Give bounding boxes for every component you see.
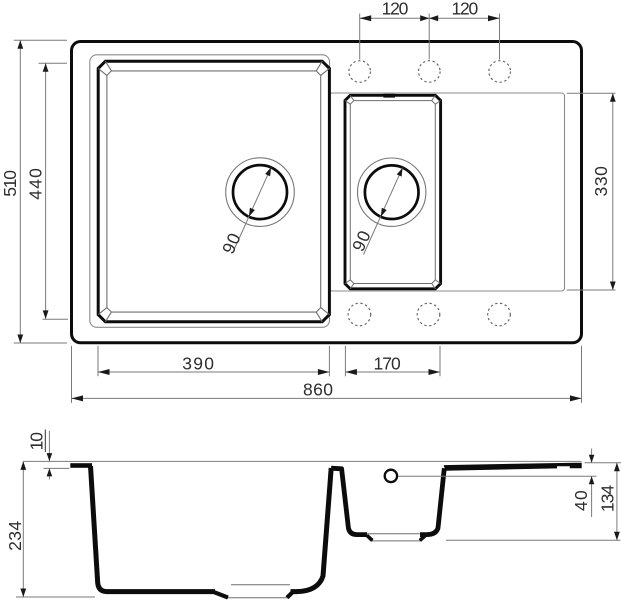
svg-text:120: 120 — [382, 0, 409, 19]
svg-text:234: 234 — [5, 520, 25, 550]
svg-text:330: 330 — [591, 166, 611, 197]
svg-text:120: 120 — [451, 0, 478, 19]
svg-text:860: 860 — [303, 379, 333, 399]
svg-text:170: 170 — [373, 353, 400, 373]
svg-text:10: 10 — [26, 432, 46, 451]
svg-text:440: 440 — [26, 167, 46, 200]
svg-text:390: 390 — [182, 353, 215, 373]
svg-text:510: 510 — [0, 170, 20, 197]
svg-text:40: 40 — [571, 489, 591, 511]
svg-text:90: 90 — [348, 227, 375, 255]
svg-text:134: 134 — [597, 485, 617, 512]
